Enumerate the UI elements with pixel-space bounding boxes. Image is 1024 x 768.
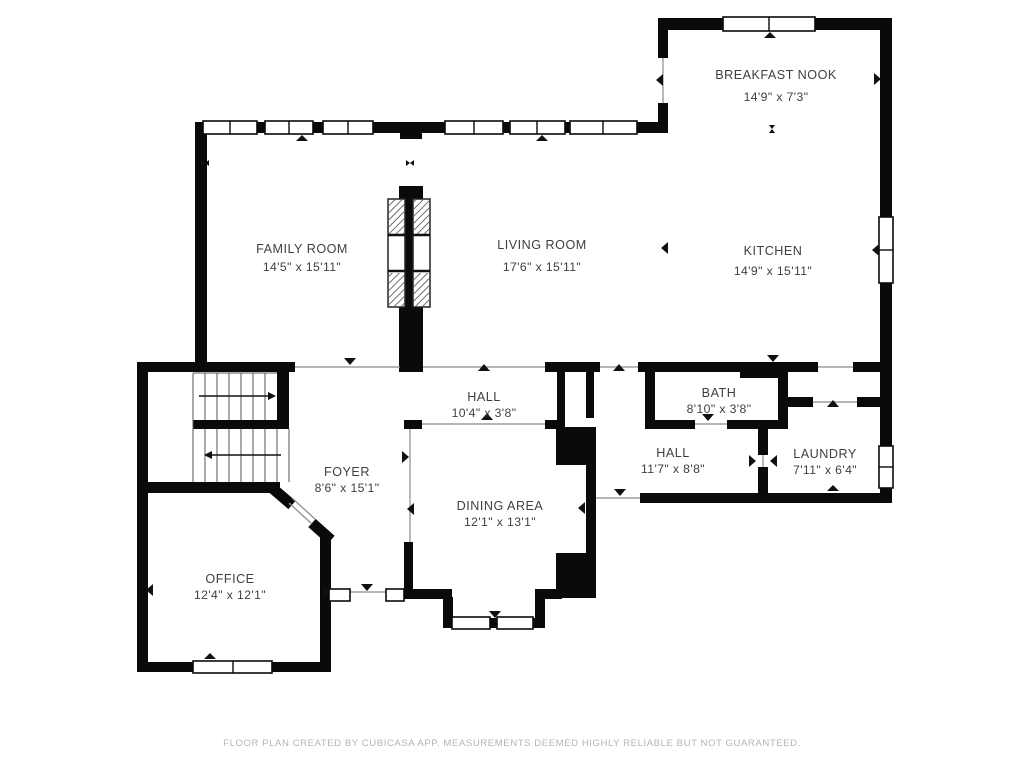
- room-dims-breakfast-nook: 14'9" x 7'3": [744, 90, 809, 104]
- floor-plan: BREAKFAST NOOK 14'9" x 7'3" FAMILY ROOM …: [0, 0, 1024, 768]
- room-dims-hall-upper: 10'4" x 3'8": [452, 406, 517, 420]
- door-openings: [289, 58, 857, 592]
- room-dims-foyer: 8'6" x 15'1": [315, 481, 380, 495]
- room-label-bath: BATH: [702, 386, 737, 400]
- room-dims-hall-east: 11'7" x 8'8": [641, 462, 705, 476]
- room-label-hall-east: HALL: [656, 446, 690, 460]
- room-label-dining-area: DINING AREA: [457, 499, 544, 513]
- floor-plan-svg: BREAKFAST NOOK 14'9" x 7'3" FAMILY ROOM …: [0, 0, 1024, 768]
- room-label-office: OFFICE: [205, 572, 254, 586]
- room-dims-laundry: 7'11" x 6'4": [793, 463, 857, 477]
- room-label-family-room: FAMILY ROOM: [256, 242, 348, 256]
- room-label-laundry: LAUNDRY: [793, 447, 857, 461]
- room-labels: BREAKFAST NOOK 14'9" x 7'3" FAMILY ROOM …: [194, 68, 857, 602]
- room-label-living-room: LIVING ROOM: [497, 238, 586, 252]
- room-label-foyer: FOYER: [324, 465, 370, 479]
- room-label-hall-upper: HALL: [467, 390, 501, 404]
- room-label-kitchen: KITCHEN: [744, 244, 803, 258]
- room-dims-dining-area: 12'1" x 13'1": [464, 515, 536, 529]
- windows: [193, 17, 893, 673]
- room-dims-bath: 8'10" x 3'8": [687, 402, 752, 416]
- fireplace: [388, 186, 430, 372]
- room-dims-living-room: 17'6" x 15'11": [503, 260, 581, 274]
- room-dims-office: 12'4" x 12'1": [194, 588, 266, 602]
- room-dims-family-room: 14'5" x 15'11": [263, 260, 341, 274]
- footer-disclaimer: FLOOR PLAN CREATED BY CUBICASA APP. MEAS…: [223, 738, 801, 749]
- room-label-breakfast-nook: BREAKFAST NOOK: [715, 68, 837, 82]
- room-dims-kitchen: 14'9" x 15'11": [734, 264, 812, 278]
